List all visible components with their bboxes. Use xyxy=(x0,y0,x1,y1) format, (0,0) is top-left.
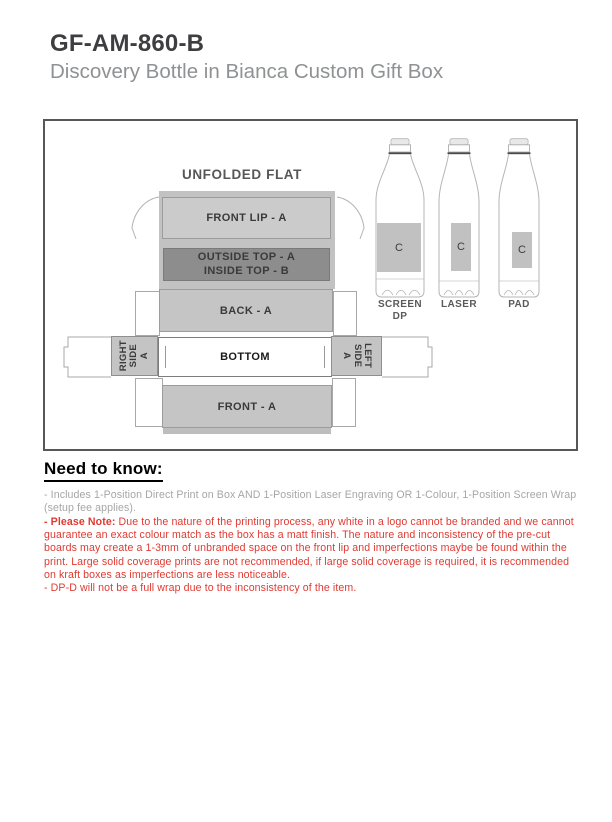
note-please-note: - Please Note: Due to the nature of the … xyxy=(44,516,584,583)
bottle-outline-icon xyxy=(375,138,425,298)
panel-front-label: FRONT - A xyxy=(218,401,277,413)
panel-right-side-label: RIGHT SIDE A xyxy=(119,340,150,371)
product-code: GF-AM-860-B xyxy=(50,30,612,58)
bottom-fold-mark-left xyxy=(165,346,166,368)
glue-tab-front-right xyxy=(332,378,356,427)
panel-back: BACK - A xyxy=(159,289,333,332)
note-please-note-text: Due to the nature of the printing proces… xyxy=(44,516,574,581)
panel-right-side: RIGHT SIDE A xyxy=(111,336,158,376)
glue-tab-back-left xyxy=(135,291,160,336)
note-includes: - Includes 1-Position Direct Print on Bo… xyxy=(44,489,584,516)
bottom-fold-mark-right xyxy=(324,346,325,368)
branding-method-label-pad: PAD xyxy=(498,299,540,311)
dieline-diagram: UNFOLDED FLAT FRONT LIP - A OUTSIDE TOP … xyxy=(43,119,578,451)
dieline-ear-flap-right xyxy=(336,196,366,241)
branding-area-screen-dp: C xyxy=(377,223,421,272)
need-to-know-section: Need to know: - Includes 1-Position Dire… xyxy=(44,459,584,596)
need-to-know-body: - Includes 1-Position Direct Print on Bo… xyxy=(44,489,584,596)
bottle-outline-icon xyxy=(438,138,480,298)
dieline-front-edge-strip xyxy=(163,427,331,434)
panel-left-side: LEFT SIDE A xyxy=(331,336,382,376)
panel-outside-top: OUTSIDE TOP - A INSIDE TOP - B xyxy=(163,248,330,281)
panel-outside-top-label: OUTSIDE TOP - A xyxy=(198,251,295,265)
panel-front: FRONT - A xyxy=(162,385,332,428)
need-to-know-heading: Need to know: xyxy=(44,459,163,482)
branding-area-pad: C xyxy=(512,232,532,268)
branding-method-label-laser: LASER xyxy=(438,299,480,311)
branding-area-laser: C xyxy=(451,223,471,271)
tuck-flap-right xyxy=(381,336,433,378)
panel-bottom: BOTTOM xyxy=(158,337,332,377)
tuck-flap-left xyxy=(63,336,112,378)
panel-inside-top-label: INSIDE TOP - B xyxy=(204,265,289,279)
left-side-line3: A xyxy=(341,344,351,369)
panel-bottom-label: BOTTOM xyxy=(220,351,270,363)
note-please-note-lead: - Please Note: xyxy=(44,516,115,528)
bottle-pad: C xyxy=(498,138,540,298)
label-line: PAD xyxy=(498,299,540,311)
dieline-ear-flap-left xyxy=(130,196,160,241)
panel-front-lip: FRONT LIP - A xyxy=(162,197,331,239)
page-header: GF-AM-860-B Discovery Bottle in Bianca C… xyxy=(50,30,612,84)
glue-tab-front-left xyxy=(135,378,163,427)
bottle-screen-dp: C xyxy=(375,138,425,298)
panel-back-label: BACK - A xyxy=(220,305,272,317)
label-line: DP xyxy=(370,311,430,323)
left-side-line1: LEFT xyxy=(362,344,372,369)
panel-front-lip-label: FRONT LIP - A xyxy=(206,212,286,224)
note-dpd: - DP-D will not be a full wrap due to th… xyxy=(44,582,584,595)
bottle-laser: C xyxy=(438,138,480,298)
panel-left-side-label: LEFT SIDE A xyxy=(341,344,372,369)
label-line: LASER xyxy=(438,299,480,311)
right-side-line3: A xyxy=(140,340,150,371)
product-title: Discovery Bottle in Bianca Custom Gift B… xyxy=(50,60,612,84)
branding-method-label-screen-dp: SCREEN DP xyxy=(370,299,430,323)
bottle-outline-icon xyxy=(498,138,540,298)
glue-tab-back-right xyxy=(333,291,357,336)
label-line: SCREEN xyxy=(370,299,430,311)
diagram-title: UNFOLDED FLAT xyxy=(142,167,342,182)
left-side-line2: SIDE xyxy=(351,344,361,369)
